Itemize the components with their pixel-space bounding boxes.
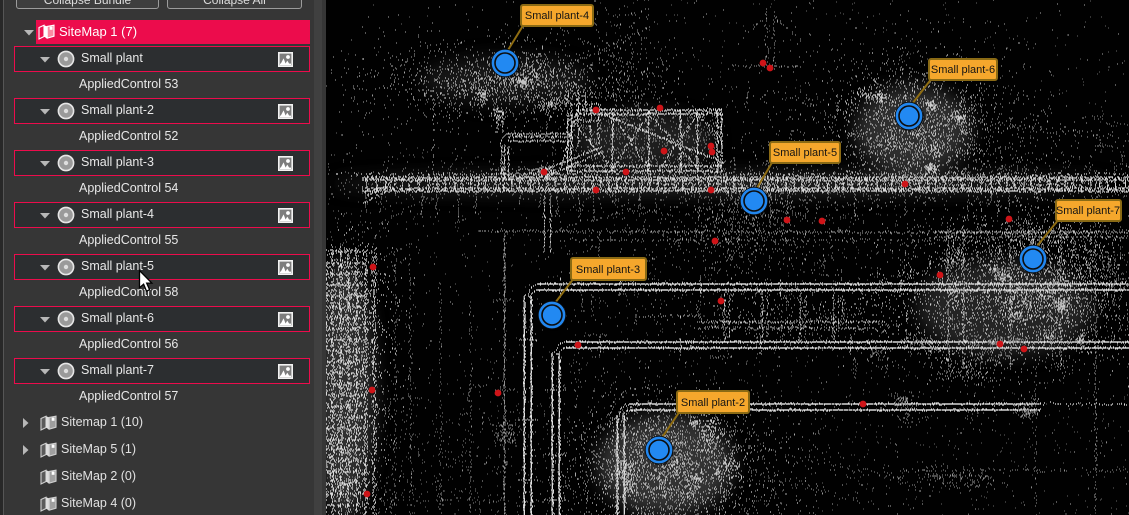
svg-text:Small plant-7: Small plant-7 xyxy=(1056,205,1120,217)
svg-text:Small plant-4: Small plant-4 xyxy=(525,10,589,22)
svg-text:Small plant-5: Small plant-5 xyxy=(773,147,837,159)
svg-text:Small plant-3: Small plant-3 xyxy=(576,264,640,276)
svg-text:Small plant-2: Small plant-2 xyxy=(681,397,745,409)
svg-text:Small plant-6: Small plant-6 xyxy=(931,64,995,76)
